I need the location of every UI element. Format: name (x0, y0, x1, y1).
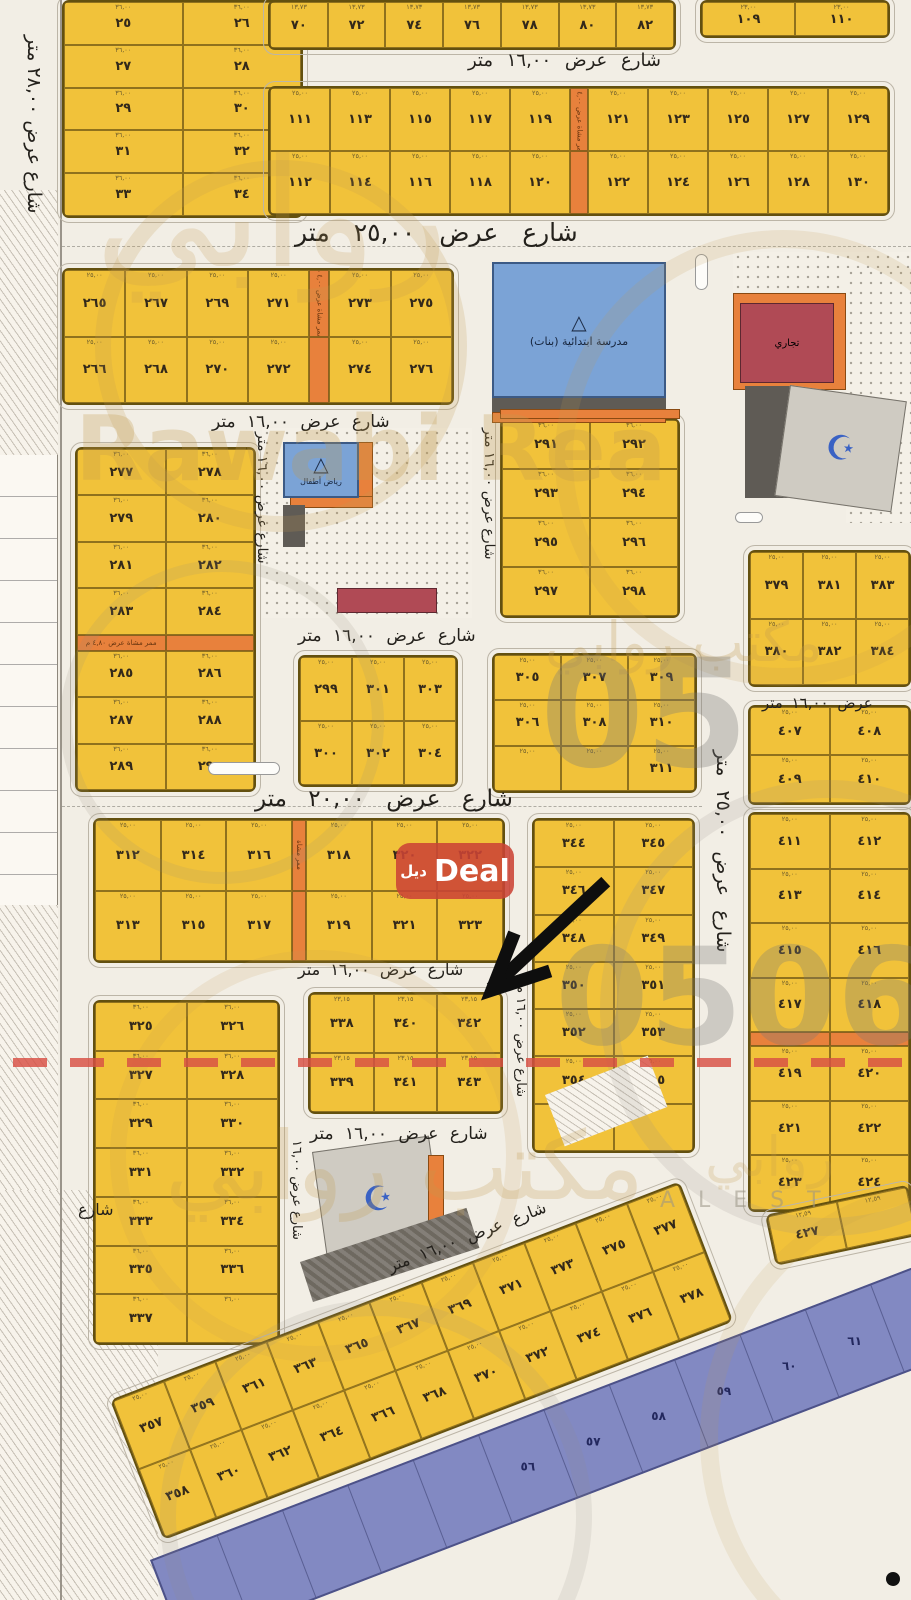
plot-number: ١١٦ (408, 175, 432, 190)
plot-dimension: ١٣,٧٣ (637, 3, 653, 11)
plot-number: ٣١٦ (247, 848, 271, 863)
plot-number: ٢٧ (115, 59, 131, 74)
plot-number: ٤٢٣ (778, 1175, 802, 1190)
plot-number: ٣٣٢ (220, 1165, 244, 1180)
plot-cell: ٢٥,٠٠١٢٦ (708, 151, 768, 214)
plot-dimension: ١٣,٧٣ (291, 3, 307, 11)
plot-cell: ٣٦,٠٠٢٧ (64, 45, 183, 88)
plot-cell: ٢٥,٠٠٤١٥ (750, 923, 830, 978)
red-area (337, 588, 437, 613)
plot-cell: ٣٦,٠٠٣٣٢ (187, 1148, 279, 1197)
plot-cell: ٢٥,٠٠٤١٣ (750, 869, 830, 924)
plot-cell: ٢٥,٠٠٤١٨ (830, 978, 910, 1033)
street-label: شارع عرض ١٦,٠٠ متر (468, 50, 661, 71)
plot-number: ٣٧٠ (472, 1364, 500, 1387)
block-379-384: ٢٥,٠٠٣٧٩٢٥,٠٠٣٨١٢٥,٠٠٣٨٣٢٥,٠٠٣٨٠٢٥,٠٠٣٨٢… (748, 550, 911, 687)
plot-number: ١١١ (288, 112, 312, 127)
street-label: شارع عرض ١٦,٠٠ متر (298, 626, 476, 646)
plot-number: ٢٧٧ (109, 465, 133, 480)
plot-dimension: ٢٥,٠٠ (209, 338, 225, 346)
commercial-block: تجاري (740, 303, 834, 383)
plot-dimension: ٢٥,٠٠ (352, 338, 368, 346)
plot-dimension: ٣٦,٠٠ (202, 450, 218, 458)
plot-dimension: ٢٥,٠٠ (566, 868, 582, 876)
plot-cell: ٢٥,٠٠٣٤٤ (534, 820, 614, 867)
plot-cell: ٢٥,٠٠١٢٩ (828, 88, 888, 151)
plot-number: ٣٧٨ (678, 1285, 706, 1308)
plot-cell: ٣٦,٠٠٢٨٨ (166, 697, 255, 743)
plot-number: ٣٢٥ (129, 1019, 153, 1034)
plot-cell: ٣٦,٠٠٢٩٧ (502, 567, 590, 616)
plot-cell: ١٣,٧٣٧٤ (385, 2, 443, 48)
pedestrian-walkway: ممر مشاة عرض ٤,٠٠ م (570, 88, 588, 151)
plot-dimension: ٢٥,٠٠ (586, 747, 602, 755)
plot-number: ٣٥٩ (189, 1394, 217, 1417)
mosque-block: ☪ (774, 385, 906, 512)
triangle-icon: △ (313, 454, 328, 474)
plot-cell: ٢٥,٠٠٢٧٠ (187, 337, 248, 404)
plot-cell: ٣٦,٠٠٣٣٦ (187, 1246, 279, 1295)
plot-cell: ٣٦,٠٠٢٨ (183, 45, 302, 88)
plot-number: ٨٠ (579, 18, 595, 33)
plot-number: ٣٠٤ (418, 746, 442, 761)
plot-dimension: ٢٥,٠٠ (645, 1010, 661, 1018)
plot-dimension: ٣٦,٠٠ (202, 543, 218, 551)
plot-number: ٣٣٩ (330, 1075, 354, 1090)
plot-number: ٢٨٥ (109, 666, 133, 681)
plot-dimension: ٣٦,٠٠ (115, 46, 131, 54)
plot-dimension: ٢٥,٠٠ (874, 553, 890, 561)
plot-dimension: ٢٥,٠٠ (821, 620, 837, 628)
plot-number: ٣٨٢ (818, 644, 842, 659)
plot-dimension: ٣٦,٠٠ (202, 652, 218, 660)
plot-cell: ٢٥,٠٠٤٢٠ (830, 1046, 910, 1101)
plot-dimension: ٣٦,٠٠ (224, 1100, 240, 1108)
plot-dimension: ٢٥,٠٠ (422, 658, 438, 666)
plot-dimension: ٢٥,٠٠ (566, 1010, 582, 1018)
plot-number: ١١٥ (408, 112, 432, 127)
plot-number: ٤١٨ (857, 997, 881, 1012)
plot-dimension: ٢٥,٠٠ (730, 89, 746, 97)
block-407-410: ٢٥,٠٠٤٠٧٢٥,٠٠٤٠٨٢٥,٠٠٤٠٩٢٥,٠٠٤١٠ (748, 705, 911, 805)
plot-number: ١٢٥ (726, 112, 750, 127)
plot-dimension: ٢٥,٠٠ (472, 152, 488, 160)
plot-cell: ٢٥,٠٠٣٨١ (803, 552, 856, 619)
plot-number: ١١٣ (348, 112, 372, 127)
plot-number: ٢٧٣ (348, 296, 372, 311)
subdivision-map: ديل Deal ٣٦,٠٠٢٥٣٦,٠٠٢٦٣٦,٠٠٢٧٣٦,٠٠٢٨٣٦,… (0, 0, 911, 1600)
plot-cell: ٢٥,٠٠٤١٠ (830, 755, 910, 803)
plot-number: ٣٠٣ (418, 682, 442, 697)
plot-dimension: ٢٥,٠٠ (782, 979, 798, 987)
plot-dimension: ٢٥,٠٠ (782, 815, 798, 823)
plot-cell: ٢٥,٠٠١٢٠ (510, 151, 570, 214)
plot-number: ٥٨ (651, 1409, 666, 1423)
plot-cell: ٣٦,٠٠٢٩١ (502, 420, 590, 469)
plot-dimension: ٢٥,٠٠ (396, 821, 412, 829)
plot-cell: ٢٥,٠٠٣١٨ (306, 820, 372, 891)
plot-cell: ٢٥,٠٠٣٠٨ (561, 700, 628, 745)
plot-dimension: ٢٥,٠٠ (148, 338, 164, 346)
plot-number: ١٢٧ (786, 112, 810, 127)
plot-number: ٤١٩ (778, 1066, 802, 1081)
plot-number: ٤٠٧ (778, 724, 802, 739)
plot-number: ٣٧٩ (765, 578, 789, 593)
plot-cell: ٢٥,٠٠٤٠٩ (750, 755, 830, 803)
plot-number: ٣٣٦ (220, 1262, 244, 1277)
plot-dimension: ١٣,٧٣ (579, 3, 595, 11)
plot-cell: ٢٥,٠٠٤٠٧ (750, 707, 830, 755)
plot-cell: ٣٦,٠٠٢٨٦ (166, 651, 255, 697)
plot-number: ٣٠٥ (516, 670, 540, 685)
plot-cell: ١٣,٧٣٧٦ (443, 2, 501, 48)
plot-number: ٤٢٠ (857, 1066, 881, 1081)
plot-number: ٥٦ (521, 1459, 536, 1473)
plot-cell: ١٣,٧٣٨٢ (616, 2, 674, 48)
plot-cell: ٢٥,٠٠٣٥١ (614, 962, 694, 1009)
plot-dimension: ٢٥,٠٠ (292, 89, 308, 97)
plot-cell: ٣٦,٠٠٢٨١ (77, 542, 166, 588)
plot-number: ١١٨ (468, 175, 492, 190)
plot-dimension: ٣٦,٠٠ (626, 568, 642, 576)
plot-dimension: ٣٦,٠٠ (626, 519, 642, 527)
plot-cell: ٢٥,٠٠٣٠٣ (404, 657, 456, 721)
plot-number: ٣١ (115, 144, 131, 159)
plot-dimension: ٢٥,٠٠ (331, 821, 347, 829)
plot-dimension: ٣٦,٠٠ (113, 496, 129, 504)
plot-dimension: ٣٦,٠٠ (115, 89, 131, 97)
plot-cell: ٢٥,٠٠١٢٥ (708, 88, 768, 151)
pedestrian-walkway: ممر مشاة عرض ٤,٠٠ م (309, 270, 329, 337)
street-label: شارع (78, 1200, 114, 1219)
plot-number: ٣٥٢ (562, 1025, 586, 1040)
plot-number: ٣٤ (234, 187, 250, 202)
plot-number: ٣١٧ (247, 918, 271, 933)
plot-number: ٣٢٣ (458, 918, 482, 933)
plot-number: ٢٨٦ (198, 666, 222, 681)
plot-dimension: ٣٦,٠٠ (115, 3, 131, 11)
plot-number: ٣٦٨ (421, 1384, 449, 1407)
plot-number: ٣٢٦ (220, 1019, 244, 1034)
pedestrian-walkway: ممر مشاة عرض ٤,٨٠ م (77, 635, 166, 651)
plot-cell: ٢٥,٠٠٣٧٩ (750, 552, 803, 619)
plot-number: ٤١٠ (857, 772, 881, 787)
street-label: شارع عرض ١٦,٠٠ (289, 1140, 304, 1240)
street-label: شارع عرض ١٦,٠٠ متر (254, 432, 270, 563)
plot-number: ٣١٤ (182, 848, 206, 863)
plot-number: ٣٦٦ (369, 1403, 397, 1426)
plot-cell: ١٣,٧٣٧٢ (328, 2, 386, 48)
plot-dimension: ٢٥,٠٠ (285, 1330, 303, 1343)
plot-dimension: ٣٦,٠٠ (113, 543, 129, 551)
school-block: △مدرسة ابتدائية (بنات) (492, 262, 666, 398)
plot-dimension: ٢٥,٠٠ (422, 722, 438, 730)
plot-dimension: ٣٦,٠٠ (133, 1149, 149, 1157)
street-label: شارع عرض ٢٠,٠٠ متر (255, 786, 513, 812)
plot-number: ٥٩ (717, 1384, 732, 1398)
plot-cell: ٢٥,٠٠٣٨٢ (803, 619, 856, 686)
plot-number: ٣٤٢ (457, 1016, 481, 1031)
plot-dimension: ٢٥,٠٠ (645, 868, 661, 876)
plot-number: ٢٦٩ (205, 296, 229, 311)
block-411-424: ٢٥,٠٠٤١١٢٥,٠٠٤١٢٢٥,٠٠٤١٣٢٥,٠٠٤١٤٢٥,٠٠٤١٥… (748, 812, 911, 1212)
plot-cell: ٢٥,٠٠٣٠٥ (494, 655, 561, 700)
plot-number: ٣٢٩ (129, 1116, 153, 1131)
deal-logo-english: Deal (434, 854, 510, 889)
plot-number: ٣٣٧ (129, 1311, 153, 1326)
plot-dimension: ٢٥,٠٠ (782, 1156, 798, 1164)
plot-number: ١٢١ (606, 112, 630, 127)
plot-number: ٤١٣ (778, 888, 802, 903)
plot-cell: ٢٥,٠٠١٢٢ (588, 151, 648, 214)
plot-number: ٣٤٩ (641, 931, 665, 946)
plot-number: ٣٥٨ (164, 1482, 192, 1505)
plot-number: ٤٢١ (778, 1121, 802, 1136)
street-label: عرض ١٦,٠٠ متر (762, 694, 873, 712)
plot-dimension: ٣٦,٠٠ (133, 1198, 149, 1206)
plot-cell: ٢٥,٠٠٣٠٦ (494, 700, 561, 745)
plot-number: ٢٧٥ (409, 296, 433, 311)
plot-number: ٢٨٨ (198, 713, 222, 728)
plot-cell: ٢٥,٠٠٣١١ (628, 746, 695, 791)
plot-number: ٣١٢ (116, 848, 140, 863)
plot-dimension: ٢٥,٠٠ (519, 701, 535, 709)
plot-number: ٣٣٠ (220, 1116, 244, 1131)
plot-dimension: ١٣,٧٣ (522, 3, 538, 11)
plot-cell: ٣٦,٠٠٣٣١ (95, 1148, 187, 1197)
plot-number: ٣٣١ (129, 1165, 153, 1180)
plot-dimension: ٢٥,٠٠ (821, 553, 837, 561)
block-70-82: ١٣,٧٣٧٠١٣,٧٣٧٢١٣,٧٣٧٤١٣,٧٣٧٦١٣,٧٣٧٨١٣,٧٣… (268, 0, 676, 50)
plot-dimension: ٣٦,٠٠ (113, 589, 129, 597)
plot-number: ٣٦١ (240, 1375, 268, 1398)
plot-cell: ٣٦,٠٠٢٨٢ (166, 542, 255, 588)
plot-cell: ٢٥,٠٠٣٤٨ (534, 915, 614, 962)
plot-cell: ٢٥,٠٠٣٤٩ (614, 915, 694, 962)
plot-cell: ٢٥,٠٠٢٧٣ (329, 270, 390, 337)
plot-cell: ٢٥,٠٠٢٦٨ (125, 337, 186, 404)
plot-number: ٢٩٩ (314, 682, 338, 697)
plot-cell: ٢٥,٠٠١١٧ (450, 88, 510, 151)
plot-dimension: ٢٣,٠٠ (833, 3, 849, 11)
plot-number: ٣٤٦ (562, 883, 586, 898)
plot-number: ٣٣٨ (330, 1016, 354, 1031)
plot-cell: ٢٥,٠٠١١٤ (330, 151, 390, 214)
plot-number: ٣٠٠ (314, 746, 338, 761)
plot-cell: ٢٥,٠٠٣٠٤ (404, 721, 456, 785)
plot-dimension: ٢٥,٠٠ (271, 271, 287, 279)
plot-cell: ٢٥,٠٠٣١٦ (226, 820, 292, 891)
plot-cell: ٣٦,٠٠٢٩ (64, 88, 183, 131)
plot-cell: ٢٥,٠٠ (561, 746, 628, 791)
plot-dimension: ٣٦,٠٠ (202, 496, 218, 504)
plot-number: ٣٤٧ (641, 883, 665, 898)
block-277-290: ٣٦,٠٠٢٧٧٣٦,٠٠٢٧٨٣٦,٠٠٢٧٩٣٦,٠٠٢٨٠٣٦,٠٠٢٨١… (75, 447, 256, 792)
plot-number: ١٢٨ (786, 175, 810, 190)
plot-number: ٣٥٧ (138, 1414, 166, 1437)
plot-dimension: ٢٥,٠٠ (586, 701, 602, 709)
plot-cell: ٣٦,٠٠٢٩٤ (590, 469, 678, 518)
plot-cell: ٢٣,١٥٣٤٠ (374, 994, 438, 1053)
block-325-337: ٣٦,٠٠٣٢٥٣٦,٠٠٣٢٦٣٦,٠٠٣٢٧٣٦,٠٠٣٢٨٣٦,٠٠٣٢٩… (93, 1000, 280, 1345)
plot-number: ٢٧٤ (348, 362, 372, 377)
plot-cell: ٣٦,٠٠٢٨٩ (77, 744, 166, 790)
plot-cell: ٢٥,٠٠١١٨ (450, 151, 510, 214)
plot-cell: ٣٦,٠٠٣٣٤ (187, 1197, 279, 1246)
plot-dimension: ٣٦,٠٠ (538, 568, 554, 576)
plot-dimension: ٢٥,٠٠ (148, 271, 164, 279)
plot-dimension: ٣٦,٠٠ (224, 1003, 240, 1011)
plot-number: ٤١٧ (778, 997, 802, 1012)
plot-cell: ٢٥,٠٠٣٨٤ (856, 619, 909, 686)
plot-number: ٢٧٩ (109, 511, 133, 526)
street-label: شارع عرض ١٦,٠٠ م (513, 985, 528, 1097)
block-25-34: ٣٦,٠٠٢٥٣٦,٠٠٢٦٣٦,٠٠٢٧٣٦,٠٠٢٨٣٦,٠٠٢٩٣٦,٠٠… (62, 0, 303, 218)
plot-number: ٢٩٨ (622, 584, 646, 599)
pedestrian-walkway (166, 635, 255, 651)
plot-number: ٣٥١ (641, 978, 665, 993)
plot-dimension: ٢٥,٠٠ (532, 89, 548, 97)
plot-cell: ٣٦,٠٠٢٧٨ (166, 449, 255, 495)
plot-dimension: ٢٥,٠٠ (645, 963, 661, 971)
gray-area (283, 505, 305, 547)
plot-cell: ٢٥,٠٠١٢٣ (648, 88, 708, 151)
plot-dimension: ٣٦,٠٠ (133, 1100, 149, 1108)
pedestrian-walkway (750, 1032, 830, 1046)
plot-cell: ٢٥,٠٠٢٧٢ (248, 337, 309, 404)
plot-cell: ٣٦,٠٠٢٧٧ (77, 449, 166, 495)
pill-area (208, 762, 280, 775)
orange-area (500, 409, 680, 419)
plot-number: ١١٠ (830, 12, 854, 27)
plot-dimension: ٢٥,٠٠ (594, 1212, 612, 1225)
plot-number: ٣٢ (234, 144, 250, 159)
plot-cell: ٣٦,٠٠٣١ (64, 130, 183, 173)
plot-number: ٢٧٢ (267, 362, 291, 377)
plot-dimension: ٢٥,٠٠ (185, 821, 201, 829)
walkway-label: ممر مشاة عرض ٤,٠٠ م (575, 88, 583, 151)
plot-number: ٧٢ (349, 18, 365, 33)
plot-number: ٣٦٤ (318, 1423, 346, 1446)
plot-cell: ٢٥,٠٠٣٠١ (352, 657, 404, 721)
plot-number: ١٣٠ (846, 175, 870, 190)
street-label: شارع عرض ١٦,٠٠ متر (298, 960, 463, 979)
plot-dimension: ٢٥,٠٠ (370, 722, 386, 730)
plot-number: ٧٤ (406, 18, 422, 33)
feature-label: مدرسة ابتدائية (بنات) (530, 335, 628, 348)
plot-dimension: ٣٦,٠٠ (202, 698, 218, 706)
plot-dimension: ٢٥,٠٠ (782, 870, 798, 878)
plot-number: ٢٩٤ (622, 486, 646, 501)
plot-cell: ٢٥,٠٠٢٧٤ (329, 337, 390, 404)
plot-cell: ٢٥,٠٠٤٢٢ (830, 1101, 910, 1156)
plot-dimension: ٢٥,٠٠ (610, 89, 626, 97)
plot-number: ٤٠٩ (778, 772, 802, 787)
mosque-crescent-icon: ☪ (361, 1180, 396, 1218)
plot-number: ٣٢١ (393, 918, 417, 933)
street-label: شارع عرض ٢٥,٠٠ متر (295, 218, 578, 247)
plot-cell: ٢٥,٠٠٣١٠ (628, 700, 695, 745)
plot-dimension: ٢٥,٠٠ (874, 620, 890, 628)
plot-number: ٣١٥ (182, 918, 206, 933)
plot-dimension: ٢٥,٠٠ (790, 152, 806, 160)
plot-cell: ٢٥,٠٠٣٠٠ (300, 721, 352, 785)
plot-dimension: ٢٥,٠٠ (730, 152, 746, 160)
plot-dimension: ٢٥,٠٠ (183, 1370, 201, 1383)
plot-dimension: ٢٥,٠٠ (861, 1156, 877, 1164)
plot-number: ٣٠٩ (650, 670, 674, 685)
plot-number: ٣٧٦ (627, 1305, 655, 1328)
plot-number: ٣٣٥ (129, 1262, 153, 1277)
plot-number: ١٢٦ (726, 175, 750, 190)
plot-dimension: ٣٦,٠٠ (234, 174, 250, 182)
plot-dimension: ٣٦,٠٠ (202, 589, 218, 597)
plot-number: ٨٢ (637, 18, 653, 33)
plot-number: ٣٦٥ (343, 1335, 371, 1358)
plot-cell: ٢٥,٠٠٢٧١ (248, 270, 309, 337)
plot-dimension: ٣٦,٠٠ (538, 470, 554, 478)
plot-number: ٧٠ (291, 18, 307, 33)
plot-dimension: ٣٦,٠٠ (113, 698, 129, 706)
plot-number: ٢٦٦ (83, 362, 107, 377)
block-109-110: ٢٣,٠٠١٠٩٢٣,٠٠١١٠ (700, 0, 890, 38)
plot-number: ٣٤٣ (457, 1075, 481, 1090)
pedestrian-walkway: ممر مشاة (292, 820, 306, 891)
plot-number: ٢٦٥ (83, 296, 107, 311)
plot-cell: ٢٥,٠٠٢٩٩ (300, 657, 352, 721)
plot-cell: ٢٥,٠٠١١١ (270, 88, 330, 151)
dot-area (886, 1572, 900, 1586)
plot-cell: ٣٦,٠٠٣٢٥ (95, 1002, 187, 1051)
plot-number: ٥٧ (586, 1434, 601, 1448)
plot-number: ٣١٨ (327, 848, 351, 863)
vline-area (60, 0, 62, 1600)
plot-dimension: ٢٥,٠٠ (519, 656, 535, 664)
plot-number: ٢٨٩ (109, 759, 133, 774)
plot-cell: ٢٥,٠٠٣١٩ (306, 891, 372, 962)
plot-dimension: ٢٥,٠٠ (586, 656, 602, 664)
plot-cell: ٢٥,٠٠٣٥٠ (534, 962, 614, 1009)
plot-number: ٢٩٦ (622, 535, 646, 550)
plot-cell: ٢٥,٠٠٢٦٩ (187, 270, 248, 337)
plot-number: ٢٩٢ (622, 437, 646, 452)
pedestrian-walkway (292, 891, 306, 962)
plot-cell: ٣٦,٠٠٣٢٩ (95, 1099, 187, 1148)
plot-number: ٤١٦ (857, 943, 881, 958)
deal-logo-arabic: ديل (400, 862, 427, 880)
plot-number: ٣٦٣ (292, 1355, 320, 1378)
pill-area (735, 512, 763, 523)
plot-dimension: ٢٥,٠٠ (645, 821, 661, 829)
plot-cell: ٢٥,٠٠٣٠٢ (352, 721, 404, 785)
plot-dimension: ٢٣,١٥ (461, 995, 477, 1003)
plot-dimension: ٢٣,١٥ (397, 995, 413, 1003)
plot-dimension: ٢٥,٠٠ (370, 658, 386, 666)
plot-number: ٢٩٧ (534, 584, 558, 599)
plot-number: ٢٦ (234, 16, 250, 31)
plot-number: ٤٢٤ (857, 1175, 881, 1190)
plot-cell: ٢٥,٠٠٤٢١ (750, 1101, 830, 1156)
plot-cell: ٣٦,٠٠٣٢٦ (187, 1002, 279, 1051)
plot-number: ٣٢٨ (220, 1068, 244, 1083)
plot-dimension: ٢٥,٠٠ (861, 815, 877, 823)
plot-cell: ٢٥,٠٠١٣٠ (828, 151, 888, 214)
plot-cell: ٣٦,٠٠٢٩٨ (590, 567, 678, 616)
block-265-276: ٢٥,٠٠٢٦٥٢٥,٠٠٢٦٧٢٥,٠٠٢٦٩٢٥,٠٠٢٧١ممر مشاة… (62, 268, 454, 405)
plot-cell: ٢٥,٠٠٤١١ (750, 814, 830, 869)
plot-dimension: ٢٥,٠٠ (850, 89, 866, 97)
plot-dimension: ٣٦,٠٠ (115, 174, 131, 182)
